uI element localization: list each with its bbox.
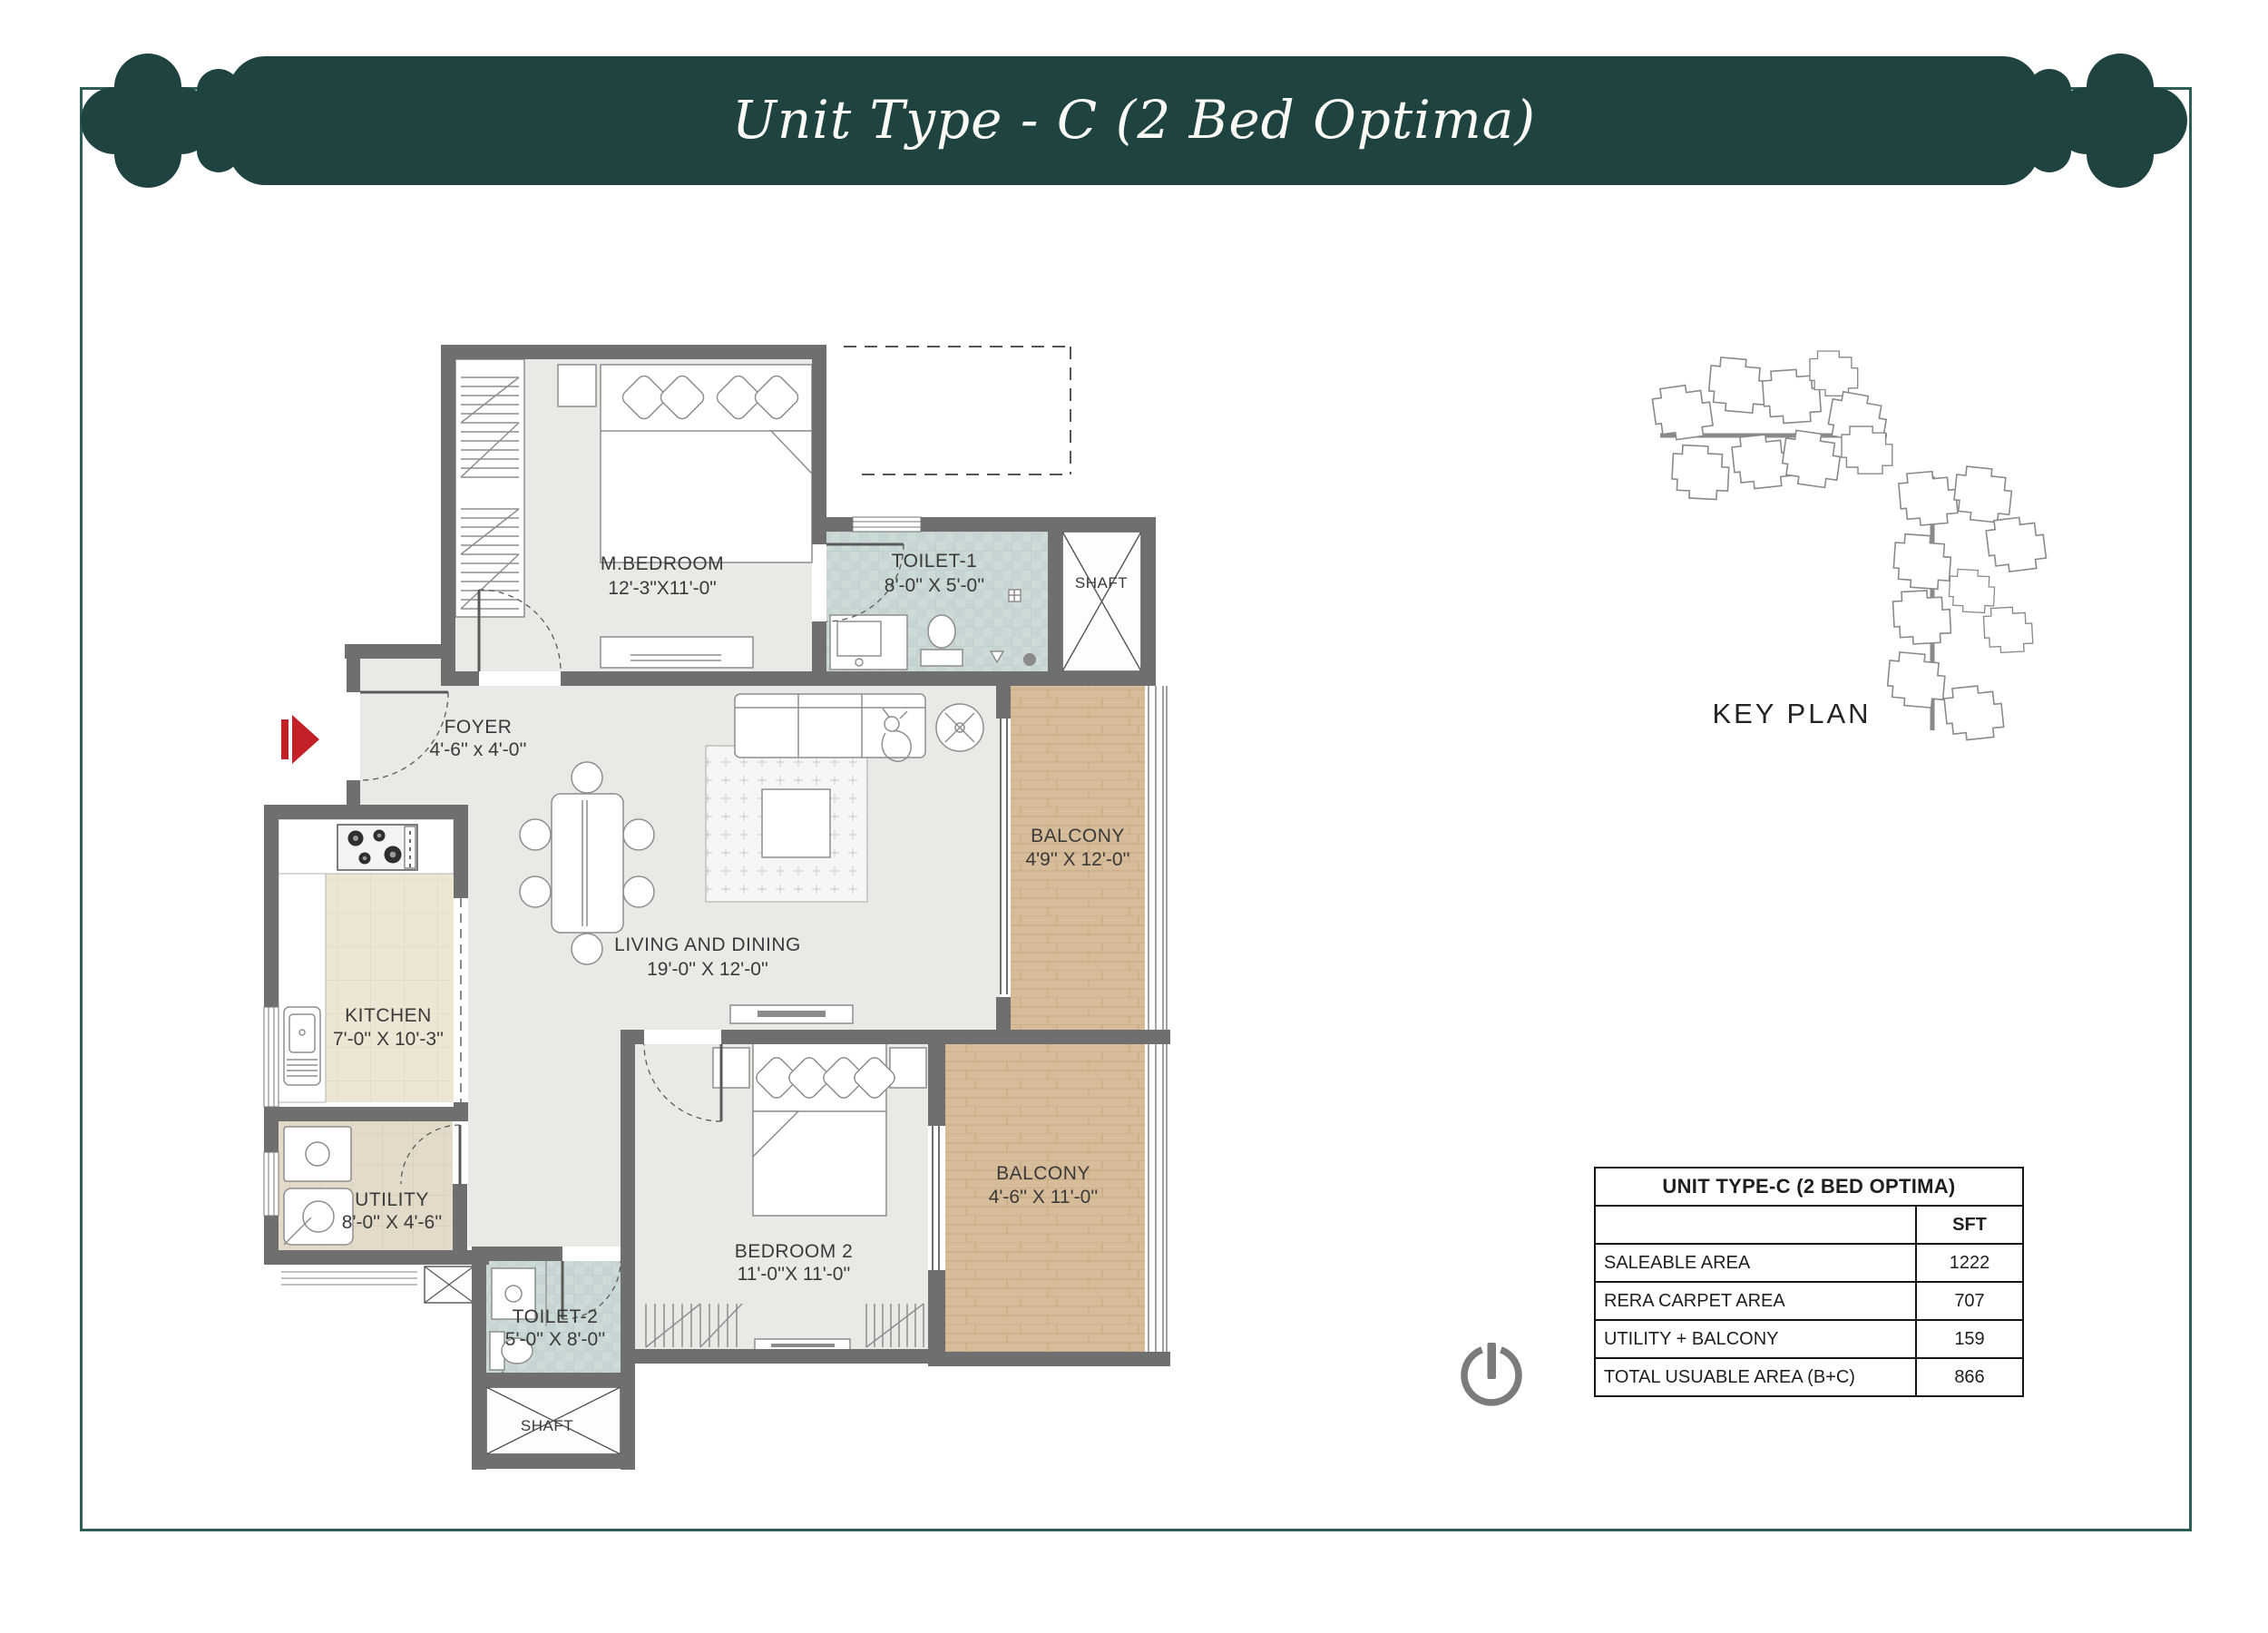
mbedroom-label: M.BEDROOM (601, 553, 724, 574)
area-row-value: 866 (1915, 1359, 2022, 1395)
balcony2-dims: 4'-6'' X 11'-0'' (989, 1187, 1099, 1208)
table-row: UTILITY + BALCONY 159 (1596, 1321, 2022, 1359)
utility-dims: 8'-0'' X 4'-6'' (342, 1212, 442, 1233)
foyer-dims: 4'-6'' x 4'-0'' (430, 739, 527, 760)
key-plan-left-cluster (1651, 351, 1892, 500)
area-table-unit-header: SFT (1915, 1207, 2022, 1243)
living-label: LIVING AND DINING (614, 934, 801, 955)
banner-left-finial-icon (81, 54, 247, 188)
area-row-value: 707 (1915, 1283, 2022, 1319)
table-row: SFT (1596, 1207, 2022, 1245)
entry-arrow-icon (281, 715, 319, 764)
shaft1-label: SHAFT (1075, 574, 1128, 592)
title-banner: Unit Type - C (2 Bed Optima) (0, 0, 2268, 218)
key-plan-right-cluster (1886, 465, 2048, 742)
key-plan-label: KEY PLAN (1712, 698, 1871, 729)
toilet2-label: TOILET-2 (513, 1306, 599, 1327)
shaft2-label: SHAFT (521, 1417, 573, 1434)
area-row-value: 1222 (1915, 1245, 2022, 1281)
living-dims: 19'-0'' X 12'-0'' (647, 959, 768, 980)
dashed-duct-outline (844, 347, 1070, 474)
balcony2-label: BALCONY (996, 1163, 1090, 1184)
area-row-label: UTILITY + BALCONY (1596, 1321, 1915, 1357)
page-title: Unit Type - C (2 Bed Optima) (732, 89, 1536, 151)
bedroom2-dims: 11'-0''X 11'-0'' (738, 1264, 851, 1285)
table-row: RERA CARPET AREA 707 (1596, 1283, 2022, 1321)
highlighted-unit (1983, 606, 2033, 653)
mbedroom-dims: 12'-3"X11'-0" (608, 578, 716, 599)
toilet2-dims: 5'-0'' X 8'-0'' (505, 1329, 605, 1350)
area-row-value: 159 (1915, 1321, 2022, 1357)
floor-plan: M.BEDROOM 12'-3"X11'-0" TOILET-1 8'-0'' … (136, 209, 1243, 1479)
toilet1-dims: 8'-0'' X 5'-0'' (885, 575, 984, 596)
area-row-label: SALEABLE AREA (1596, 1245, 1915, 1281)
area-table: UNIT TYPE-C (2 BED OPTIMA) SFT SALEABLE … (1594, 1167, 2024, 1397)
kitchen-dims: 7'-0'' X 10'-3'' (333, 1029, 444, 1050)
area-table-title: UNIT TYPE-C (2 BED OPTIMA) (1596, 1169, 2022, 1207)
utility-label: UTILITY (355, 1189, 429, 1210)
balcony1-dims: 4'9'' X 12'-0'' (1025, 849, 1129, 870)
area-table-blank-cell (1596, 1207, 1915, 1243)
foyer-label: FOYER (445, 717, 513, 738)
table-row: TOTAL USUABLE AREA (B+C) 866 (1596, 1359, 2022, 1395)
area-row-label: RERA CARPET AREA (1596, 1283, 1915, 1319)
floor-plan-page: Unit Type - C (2 Bed Optima) (0, 0, 2268, 1633)
toilet1-label: TOILET-1 (892, 551, 978, 572)
bedroom2-label: BEDROOM 2 (735, 1241, 854, 1262)
north-icon (1450, 1332, 1533, 1415)
banner-right-finial-icon (2021, 54, 2187, 188)
key-plan-figure: KEY PLAN (1624, 340, 2204, 758)
balcony1-label: BALCONY (1031, 826, 1125, 846)
area-row-label: TOTAL USUABLE AREA (B+C) (1596, 1359, 1915, 1395)
kitchen-label: KITCHEN (345, 1005, 432, 1026)
table-row: SALEABLE AREA 1222 (1596, 1245, 2022, 1283)
